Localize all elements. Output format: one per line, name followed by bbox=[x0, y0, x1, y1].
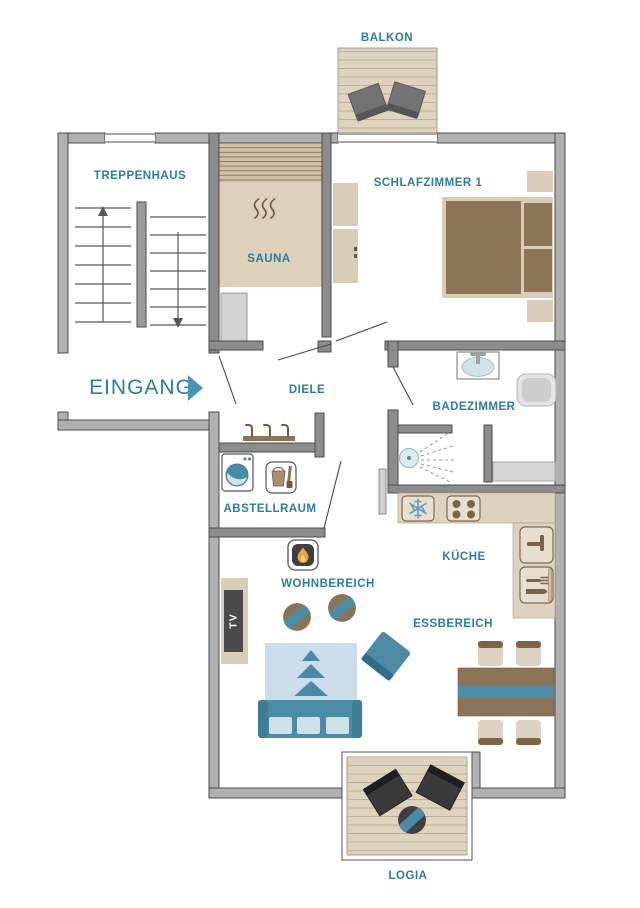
room-label-sauna: SAUNA bbox=[247, 253, 290, 265]
wall bbox=[388, 485, 565, 493]
room-label-balkon: BALKON bbox=[361, 32, 413, 44]
wall bbox=[388, 341, 398, 367]
wall bbox=[58, 420, 219, 430]
entrance-door-swing bbox=[219, 356, 236, 404]
room-label-abstellraum: ABSTELLRAUM bbox=[223, 503, 316, 515]
tv-sideboard: TV bbox=[221, 578, 248, 664]
room-label-treppenhaus: TREPPENHAUS bbox=[94, 170, 186, 182]
wall bbox=[472, 788, 565, 798]
wall bbox=[322, 133, 331, 337]
cushion bbox=[297, 717, 320, 734]
room-label-eingang: EINGANG bbox=[89, 376, 193, 399]
bathroom-door-swing bbox=[393, 367, 413, 405]
mattress bbox=[446, 201, 521, 294]
stairwell: TREPPENHAUS bbox=[75, 170, 206, 328]
wall bbox=[209, 412, 219, 798]
dining-table bbox=[458, 668, 554, 716]
wardrobe-handle bbox=[354, 254, 357, 258]
room-label-kueche: KÜCHE bbox=[442, 550, 485, 563]
wall bbox=[385, 341, 565, 350]
bath-shelf bbox=[493, 462, 555, 481]
down-arrow-icon bbox=[173, 318, 183, 328]
bedroom: SCHLAFZIMMER 1 bbox=[333, 171, 553, 322]
living-area: WOHNBEREICH TV bbox=[221, 540, 411, 738]
room-label-wohnbereich: WOHNBEREICH bbox=[281, 578, 375, 590]
round-chair-icon bbox=[281, 603, 314, 632]
room-label-badezimmer: BADEZIMMER bbox=[433, 401, 516, 413]
nightstand bbox=[527, 171, 553, 192]
nightstand bbox=[527, 300, 553, 322]
pillow bbox=[524, 203, 552, 246]
utensil-rod bbox=[549, 569, 552, 601]
washbasin-icon bbox=[457, 352, 499, 379]
bathroom: BADEZIMMER bbox=[400, 352, 557, 482]
storage-room: ABSTELLRAUM bbox=[222, 454, 317, 515]
armrest bbox=[352, 700, 362, 738]
sauna-room: SAUNA bbox=[219, 143, 322, 342]
wall bbox=[437, 133, 565, 143]
wall bbox=[484, 425, 492, 482]
room-label-essbereich: ESSBEREICH bbox=[413, 618, 493, 630]
wall bbox=[219, 443, 318, 452]
room-label-logia: LOGIA bbox=[389, 870, 428, 882]
sauna-heater bbox=[221, 293, 247, 342]
cushion bbox=[326, 717, 349, 734]
stool bbox=[478, 641, 503, 666]
wall bbox=[209, 341, 263, 350]
wall bbox=[155, 133, 338, 143]
floor-plan: BALKON bbox=[0, 0, 640, 908]
loggia: LOGIA bbox=[342, 752, 472, 882]
armrest bbox=[258, 700, 268, 738]
knife bbox=[526, 589, 547, 594]
cushion bbox=[269, 717, 292, 734]
wall bbox=[555, 133, 565, 798]
wardrobe bbox=[333, 183, 358, 226]
tv-label: TV bbox=[228, 613, 240, 628]
coat-rack-icon bbox=[243, 425, 295, 441]
kitchen: KÜCHE bbox=[398, 493, 555, 618]
stool bbox=[516, 641, 541, 666]
stairs-icon bbox=[75, 202, 206, 328]
room-label-diele: DIELE bbox=[289, 384, 325, 396]
fireplace-icon bbox=[288, 540, 318, 570]
pillow bbox=[524, 249, 552, 292]
shower-icon bbox=[400, 432, 455, 482]
sauna-platform bbox=[219, 182, 322, 287]
stair-divider bbox=[137, 202, 146, 327]
sofa bbox=[258, 700, 362, 738]
door-leaf bbox=[379, 469, 386, 514]
toilet-icon bbox=[517, 374, 556, 406]
wall bbox=[398, 425, 452, 433]
double-bed bbox=[442, 197, 553, 298]
wall bbox=[315, 413, 324, 457]
table-runner bbox=[458, 686, 554, 698]
entrance-arrow-icon bbox=[188, 375, 203, 401]
stool bbox=[478, 720, 503, 745]
entrance: EINGANG bbox=[89, 375, 203, 401]
freezer-icon bbox=[402, 496, 434, 521]
cutlery-drawer-icon bbox=[520, 567, 553, 603]
washing-machine-icon bbox=[222, 454, 253, 491]
wall bbox=[388, 410, 398, 485]
balcony: BALKON bbox=[338, 32, 437, 133]
dining-area: ESSBEREICH bbox=[413, 618, 554, 745]
wardrobe-handle bbox=[354, 247, 357, 251]
wall bbox=[209, 528, 325, 537]
balcony-door bbox=[338, 133, 437, 143]
cleaning-bucket-icon bbox=[266, 462, 296, 493]
armchair-icon bbox=[361, 631, 412, 682]
wall bbox=[58, 133, 68, 353]
hallway: DIELE bbox=[243, 384, 325, 441]
living-door-swing bbox=[324, 461, 341, 528]
room-label-schlafzimmer: SCHLAFZIMMER 1 bbox=[374, 177, 483, 189]
stove-icon bbox=[447, 496, 480, 521]
stool bbox=[516, 720, 541, 745]
wall bbox=[209, 133, 219, 353]
wall bbox=[209, 788, 342, 798]
bedroom-door-swing bbox=[336, 322, 387, 341]
window bbox=[105, 133, 155, 143]
kitchen-sink-icon bbox=[520, 527, 553, 563]
round-chair-icon bbox=[326, 594, 359, 623]
